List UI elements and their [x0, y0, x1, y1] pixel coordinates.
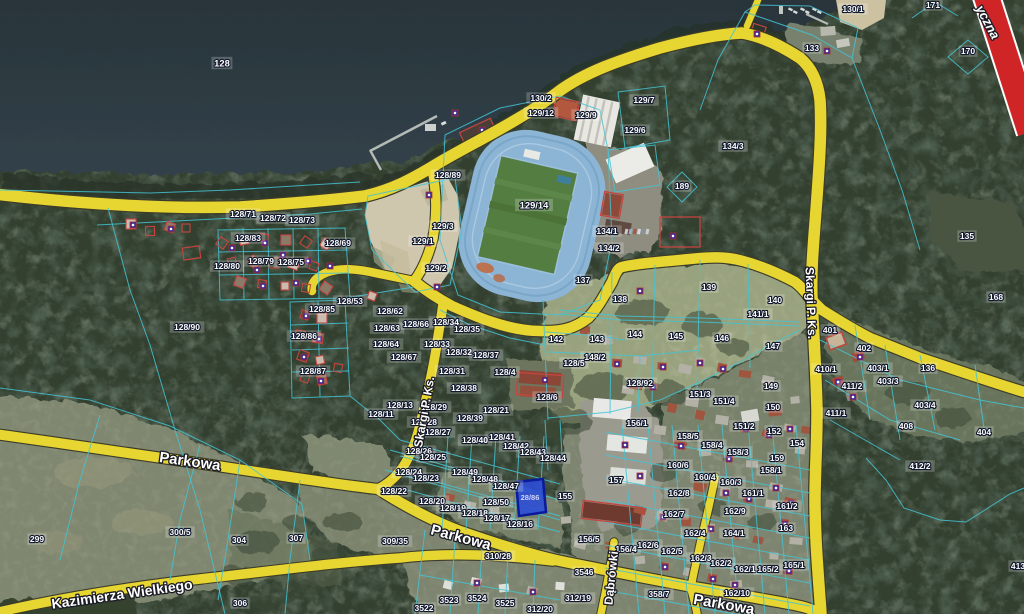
svg-text:162/2: 162/2 [710, 558, 732, 568]
svg-text:128/79: 128/79 [248, 256, 274, 266]
svg-text:154: 154 [790, 438, 804, 448]
svg-text:137: 137 [576, 275, 590, 285]
svg-text:128/64: 128/64 [373, 339, 399, 349]
svg-text:3523: 3523 [440, 595, 459, 605]
svg-text:3546: 3546 [575, 567, 594, 577]
svg-text:3522: 3522 [415, 603, 434, 613]
svg-text:148/2: 148/2 [584, 352, 606, 362]
svg-text:146: 146 [715, 333, 729, 343]
svg-text:Skargi P. Ks.: Skargi P. Ks. [803, 267, 819, 339]
svg-text:358/7: 358/7 [648, 589, 670, 599]
svg-text:404: 404 [977, 427, 991, 437]
svg-text:138: 138 [613, 294, 627, 304]
svg-text:411/1: 411/1 [826, 408, 847, 418]
svg-text:128/86: 128/86 [291, 331, 317, 341]
svg-text:128/39: 128/39 [457, 413, 483, 423]
svg-text:158/1: 158/1 [760, 465, 782, 475]
svg-text:129/9: 129/9 [575, 110, 597, 120]
svg-text:134/3: 134/3 [722, 141, 744, 151]
svg-text:128/67: 128/67 [391, 352, 417, 362]
svg-text:171: 171 [926, 0, 940, 10]
svg-text:128/40: 128/40 [462, 435, 488, 445]
svg-text:408: 408 [899, 421, 913, 431]
svg-text:129/14: 129/14 [520, 199, 549, 210]
svg-text:162/4: 162/4 [684, 528, 706, 538]
svg-text:158/4: 158/4 [701, 440, 723, 450]
svg-text:413: 413 [1011, 561, 1024, 571]
svg-text:165/2: 165/2 [757, 564, 779, 574]
svg-text:140: 140 [768, 295, 782, 305]
svg-text:128/73: 128/73 [289, 215, 315, 225]
svg-text:3524: 3524 [468, 593, 487, 603]
svg-text:3525: 3525 [496, 598, 515, 608]
svg-text:160/6: 160/6 [667, 460, 689, 470]
svg-text:299: 299 [30, 534, 44, 544]
svg-text:128/75: 128/75 [278, 257, 304, 267]
svg-text:149: 149 [764, 381, 778, 391]
svg-text:128/11: 128/11 [368, 409, 394, 419]
svg-text:161/1: 161/1 [742, 488, 764, 498]
svg-text:152: 152 [767, 426, 781, 436]
svg-text:150: 150 [766, 402, 780, 412]
svg-text:128/47: 128/47 [493, 481, 519, 491]
svg-text:156/1: 156/1 [626, 418, 648, 428]
svg-text:145: 145 [669, 331, 683, 341]
svg-text:128/53: 128/53 [337, 296, 363, 306]
svg-text:307: 307 [289, 533, 303, 543]
svg-text:160/4: 160/4 [694, 472, 716, 482]
svg-text:128/25: 128/25 [420, 452, 446, 462]
svg-text:411/2: 411/2 [842, 381, 863, 391]
svg-text:147: 147 [766, 341, 780, 351]
svg-text:306: 306 [233, 598, 247, 608]
svg-text:128/23: 128/23 [413, 473, 439, 483]
svg-text:129/7: 129/7 [633, 95, 655, 105]
svg-text:128/44: 128/44 [540, 453, 566, 463]
svg-text:141/1: 141/1 [747, 309, 769, 319]
svg-text:128/50: 128/50 [483, 497, 509, 507]
svg-text:151/4: 151/4 [713, 396, 735, 406]
svg-text:312/20: 312/20 [527, 604, 553, 614]
svg-text:401: 401 [823, 325, 837, 335]
svg-text:403/4: 403/4 [914, 400, 936, 410]
svg-text:312/19: 312/19 [565, 593, 591, 603]
svg-text:151/2: 151/2 [733, 421, 755, 431]
svg-text:134/1: 134/1 [596, 226, 618, 236]
svg-text:128/62: 128/62 [377, 306, 403, 316]
svg-text:158/3: 158/3 [727, 447, 749, 457]
svg-text:128/35: 128/35 [454, 324, 480, 334]
svg-text:128/27: 128/27 [425, 427, 451, 437]
svg-text:310/28: 310/28 [485, 551, 511, 561]
svg-text:151/3: 151/3 [689, 389, 711, 399]
svg-text:128/87: 128/87 [300, 366, 326, 376]
svg-text:165/1: 165/1 [783, 560, 805, 570]
svg-text:128/22: 128/22 [381, 486, 407, 496]
svg-text:403/1: 403/1 [867, 363, 889, 373]
svg-text:128/66: 128/66 [403, 319, 429, 329]
svg-text:134/2: 134/2 [598, 243, 620, 253]
svg-text:159: 159 [770, 453, 784, 463]
svg-text:128/38: 128/38 [451, 383, 477, 393]
svg-text:128/63: 128/63 [374, 323, 400, 333]
svg-text:130/2: 130/2 [530, 93, 552, 103]
svg-text:128/90: 128/90 [174, 322, 200, 332]
svg-text:129/12: 129/12 [528, 108, 554, 118]
svg-text:162/5: 162/5 [661, 546, 683, 556]
svg-text:128/31: 128/31 [439, 366, 465, 376]
svg-text:128/89: 128/89 [435, 170, 461, 180]
svg-text:309/35: 309/35 [382, 536, 408, 546]
svg-text:189: 189 [675, 181, 689, 191]
svg-text:128/6: 128/6 [536, 392, 558, 402]
svg-text:164/1: 164/1 [723, 528, 745, 538]
svg-text:156/5: 156/5 [578, 534, 600, 544]
svg-text:162/7: 162/7 [663, 509, 685, 519]
svg-text:139: 139 [702, 282, 716, 292]
svg-text:133: 133 [805, 43, 819, 53]
svg-text:128/72: 128/72 [260, 213, 286, 223]
svg-text:28/86: 28/86 [521, 493, 540, 502]
svg-text:402: 402 [857, 343, 871, 353]
svg-text:300/5: 300/5 [169, 527, 191, 537]
svg-text:157: 157 [609, 475, 623, 485]
svg-text:161/2: 161/2 [776, 501, 798, 511]
svg-text:128/69: 128/69 [325, 238, 351, 248]
svg-text:135: 135 [960, 231, 974, 241]
svg-text:128/85: 128/85 [309, 304, 335, 314]
svg-text:136: 136 [921, 363, 935, 373]
svg-text:128/4: 128/4 [494, 367, 516, 377]
svg-text:128/80: 128/80 [214, 261, 240, 271]
svg-text:142: 142 [549, 334, 563, 344]
svg-text:162/6: 162/6 [637, 540, 659, 550]
svg-text:129/6: 129/6 [624, 125, 646, 135]
svg-text:128/37: 128/37 [473, 350, 499, 360]
svg-text:128: 128 [214, 57, 230, 68]
svg-text:129/2: 129/2 [425, 263, 447, 273]
svg-text:160/3: 160/3 [720, 477, 742, 487]
svg-text:128/16: 128/16 [507, 519, 533, 529]
svg-text:128/32: 128/32 [446, 347, 472, 357]
svg-text:128/71: 128/71 [230, 209, 256, 219]
svg-text:129/3: 129/3 [432, 221, 454, 231]
svg-text:128/92: 128/92 [627, 378, 653, 388]
svg-text:129/1: 129/1 [412, 236, 434, 246]
svg-text:158/5: 158/5 [677, 431, 699, 441]
svg-text:304: 304 [232, 535, 246, 545]
svg-text:144: 144 [628, 329, 642, 339]
svg-text:130/1: 130/1 [842, 4, 864, 14]
svg-text:170: 170 [961, 46, 975, 56]
svg-text:412/2: 412/2 [909, 461, 931, 471]
svg-text:162/1: 162/1 [734, 564, 756, 574]
svg-text:163: 163 [779, 523, 793, 533]
svg-text:168: 168 [989, 292, 1003, 302]
svg-text:403/3: 403/3 [877, 376, 899, 386]
svg-text:162/8: 162/8 [668, 488, 690, 498]
svg-text:143: 143 [590, 334, 604, 344]
svg-text:155: 155 [558, 491, 572, 501]
svg-text:162/9: 162/9 [724, 506, 746, 516]
svg-text:128/83: 128/83 [235, 233, 261, 243]
svg-text:410/1: 410/1 [815, 364, 837, 374]
